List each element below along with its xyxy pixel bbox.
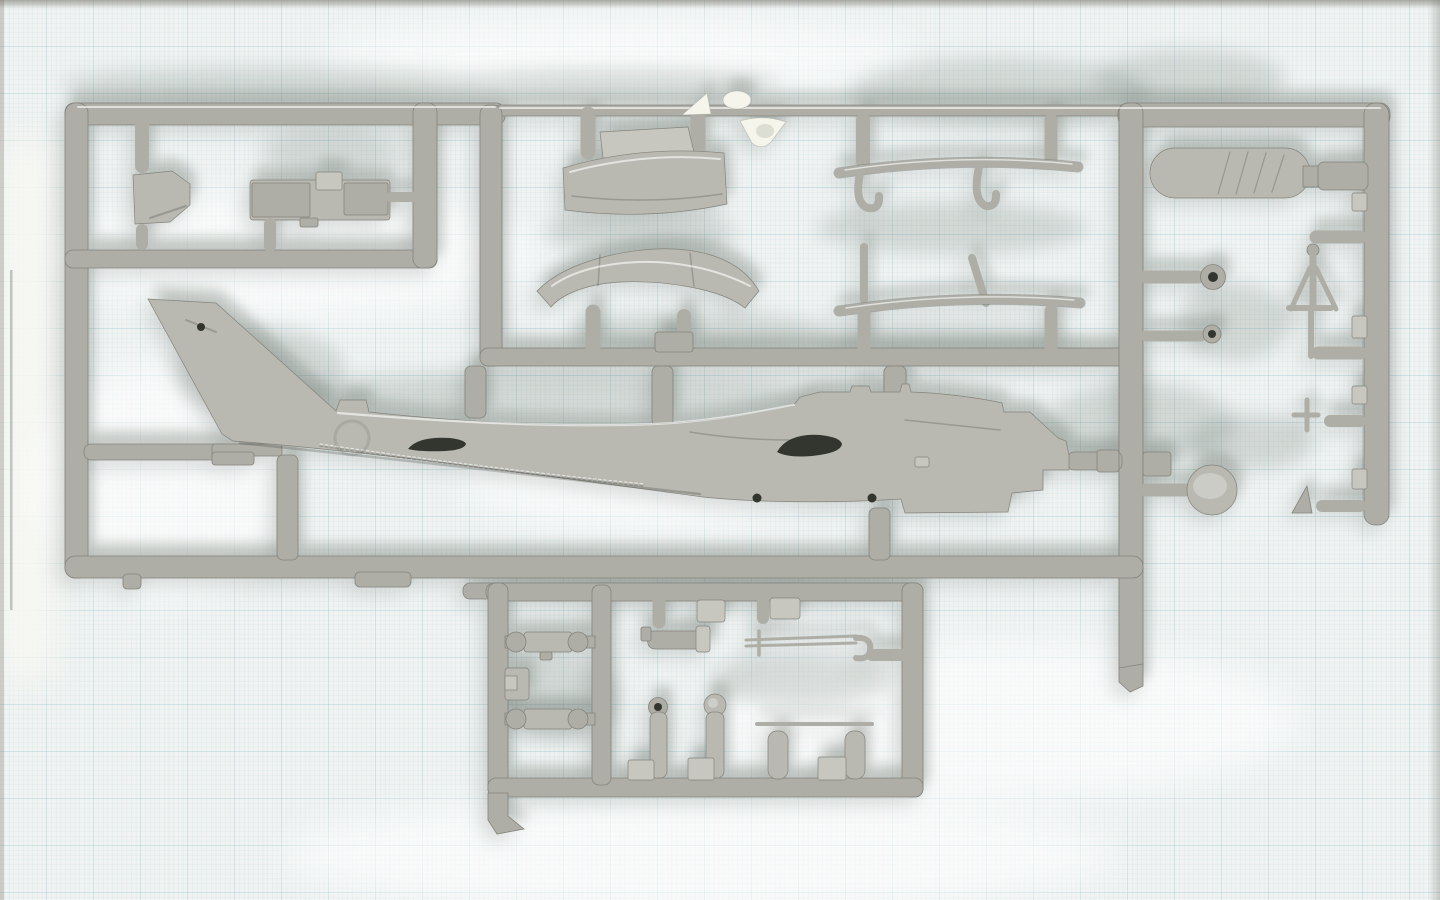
mid-rail bbox=[480, 348, 1143, 366]
locating-hole bbox=[753, 494, 762, 503]
post-base-block bbox=[628, 760, 654, 780]
photo-right-edge bbox=[1428, 0, 1440, 900]
barbell-link-2-part bbox=[505, 709, 595, 729]
second-rail-left-box bbox=[65, 250, 437, 268]
disc-highlight bbox=[1193, 473, 1227, 499]
sub-frame-divider bbox=[592, 585, 611, 785]
rail-tab bbox=[1352, 193, 1367, 211]
post-base-block bbox=[688, 758, 714, 780]
clear-blob bbox=[723, 91, 751, 109]
central-rail bbox=[1119, 103, 1143, 675]
locating-hole bbox=[868, 494, 877, 503]
rail-tab bbox=[1352, 386, 1367, 404]
panel-foot bbox=[300, 218, 318, 227]
side-bump-detail bbox=[915, 457, 929, 467]
block-notch bbox=[505, 676, 517, 690]
gate-post bbox=[652, 366, 673, 426]
link-body bbox=[524, 709, 572, 729]
link-body bbox=[524, 632, 572, 652]
sprue-photo-canvas: Gray injection-molded plastic model-kit … bbox=[0, 0, 1440, 900]
post bbox=[845, 731, 865, 779]
rail-tab bbox=[1352, 469, 1367, 489]
gate-post bbox=[465, 366, 486, 418]
tail-gate-bar bbox=[84, 444, 232, 460]
pipe-elbow bbox=[648, 631, 700, 649]
ring-hole bbox=[1208, 272, 1218, 282]
paper-margin-strip bbox=[0, 140, 54, 680]
cabin-block-1-part bbox=[697, 596, 725, 622]
sub-frame-right-rail bbox=[902, 583, 923, 797]
pipe-fitting bbox=[641, 627, 651, 641]
center-box-left-bar bbox=[480, 105, 502, 366]
link-knob bbox=[568, 632, 588, 652]
left-box-vertical-bar bbox=[413, 103, 437, 268]
post-disc-highlight bbox=[708, 698, 718, 708]
central-rail-tab-left bbox=[1097, 450, 1119, 472]
link-tab bbox=[540, 652, 552, 660]
photo-top-edge bbox=[0, 0, 1440, 9]
block-body bbox=[770, 598, 800, 619]
post-ring-hole bbox=[654, 703, 662, 711]
block-body bbox=[697, 600, 725, 622]
stabilizer-gate-block bbox=[655, 332, 693, 352]
top-rail-right bbox=[1118, 103, 1390, 127]
bottom-rail-tab-2 bbox=[355, 572, 411, 587]
post bbox=[768, 731, 788, 779]
cabin-block-2-part bbox=[763, 596, 800, 619]
left-rail bbox=[65, 103, 88, 578]
central-rail-tab-right bbox=[1143, 452, 1171, 476]
photo-left-edge bbox=[0, 0, 4, 900]
tail-step-bracket-2 bbox=[212, 452, 254, 465]
panel-tab-top bbox=[316, 172, 342, 190]
bottom-rail-tab-1 bbox=[123, 574, 141, 589]
base-block bbox=[818, 757, 846, 780]
photo-model-kit-sprue: Gray injection-molded plastic model-kit … bbox=[0, 0, 1440, 900]
link-knob bbox=[506, 709, 526, 729]
chin-gate-post bbox=[869, 508, 890, 560]
panel-block-left bbox=[252, 183, 310, 217]
sub-frame-bottom-rail bbox=[488, 778, 923, 797]
panel-block-right bbox=[344, 183, 388, 215]
paddle-gate-block bbox=[1318, 162, 1368, 190]
paper-margin-line bbox=[10, 270, 13, 610]
bottom-rail bbox=[65, 556, 1143, 578]
paddle-body bbox=[1150, 148, 1310, 198]
link-knob bbox=[506, 632, 526, 652]
boom-gate-post bbox=[277, 455, 298, 560]
pipe-end-cap bbox=[696, 626, 710, 652]
link-knob bbox=[568, 709, 588, 729]
clear-funnel-shade bbox=[756, 124, 774, 138]
small-block-part bbox=[505, 668, 529, 700]
rail-tab bbox=[1352, 316, 1367, 338]
ring-hole bbox=[1208, 330, 1216, 338]
